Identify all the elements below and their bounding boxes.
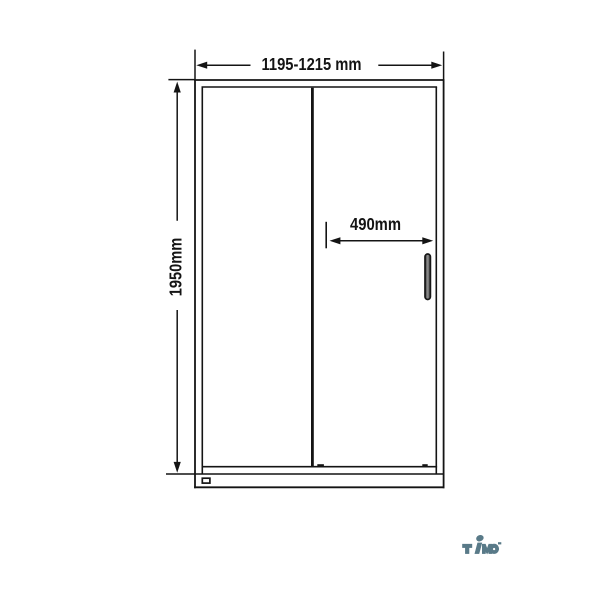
svg-text:1950mm: 1950mm [165, 238, 185, 297]
svg-text:490mm: 490mm [350, 214, 401, 234]
svg-text:1195-1215 mm: 1195-1215 mm [262, 54, 362, 74]
